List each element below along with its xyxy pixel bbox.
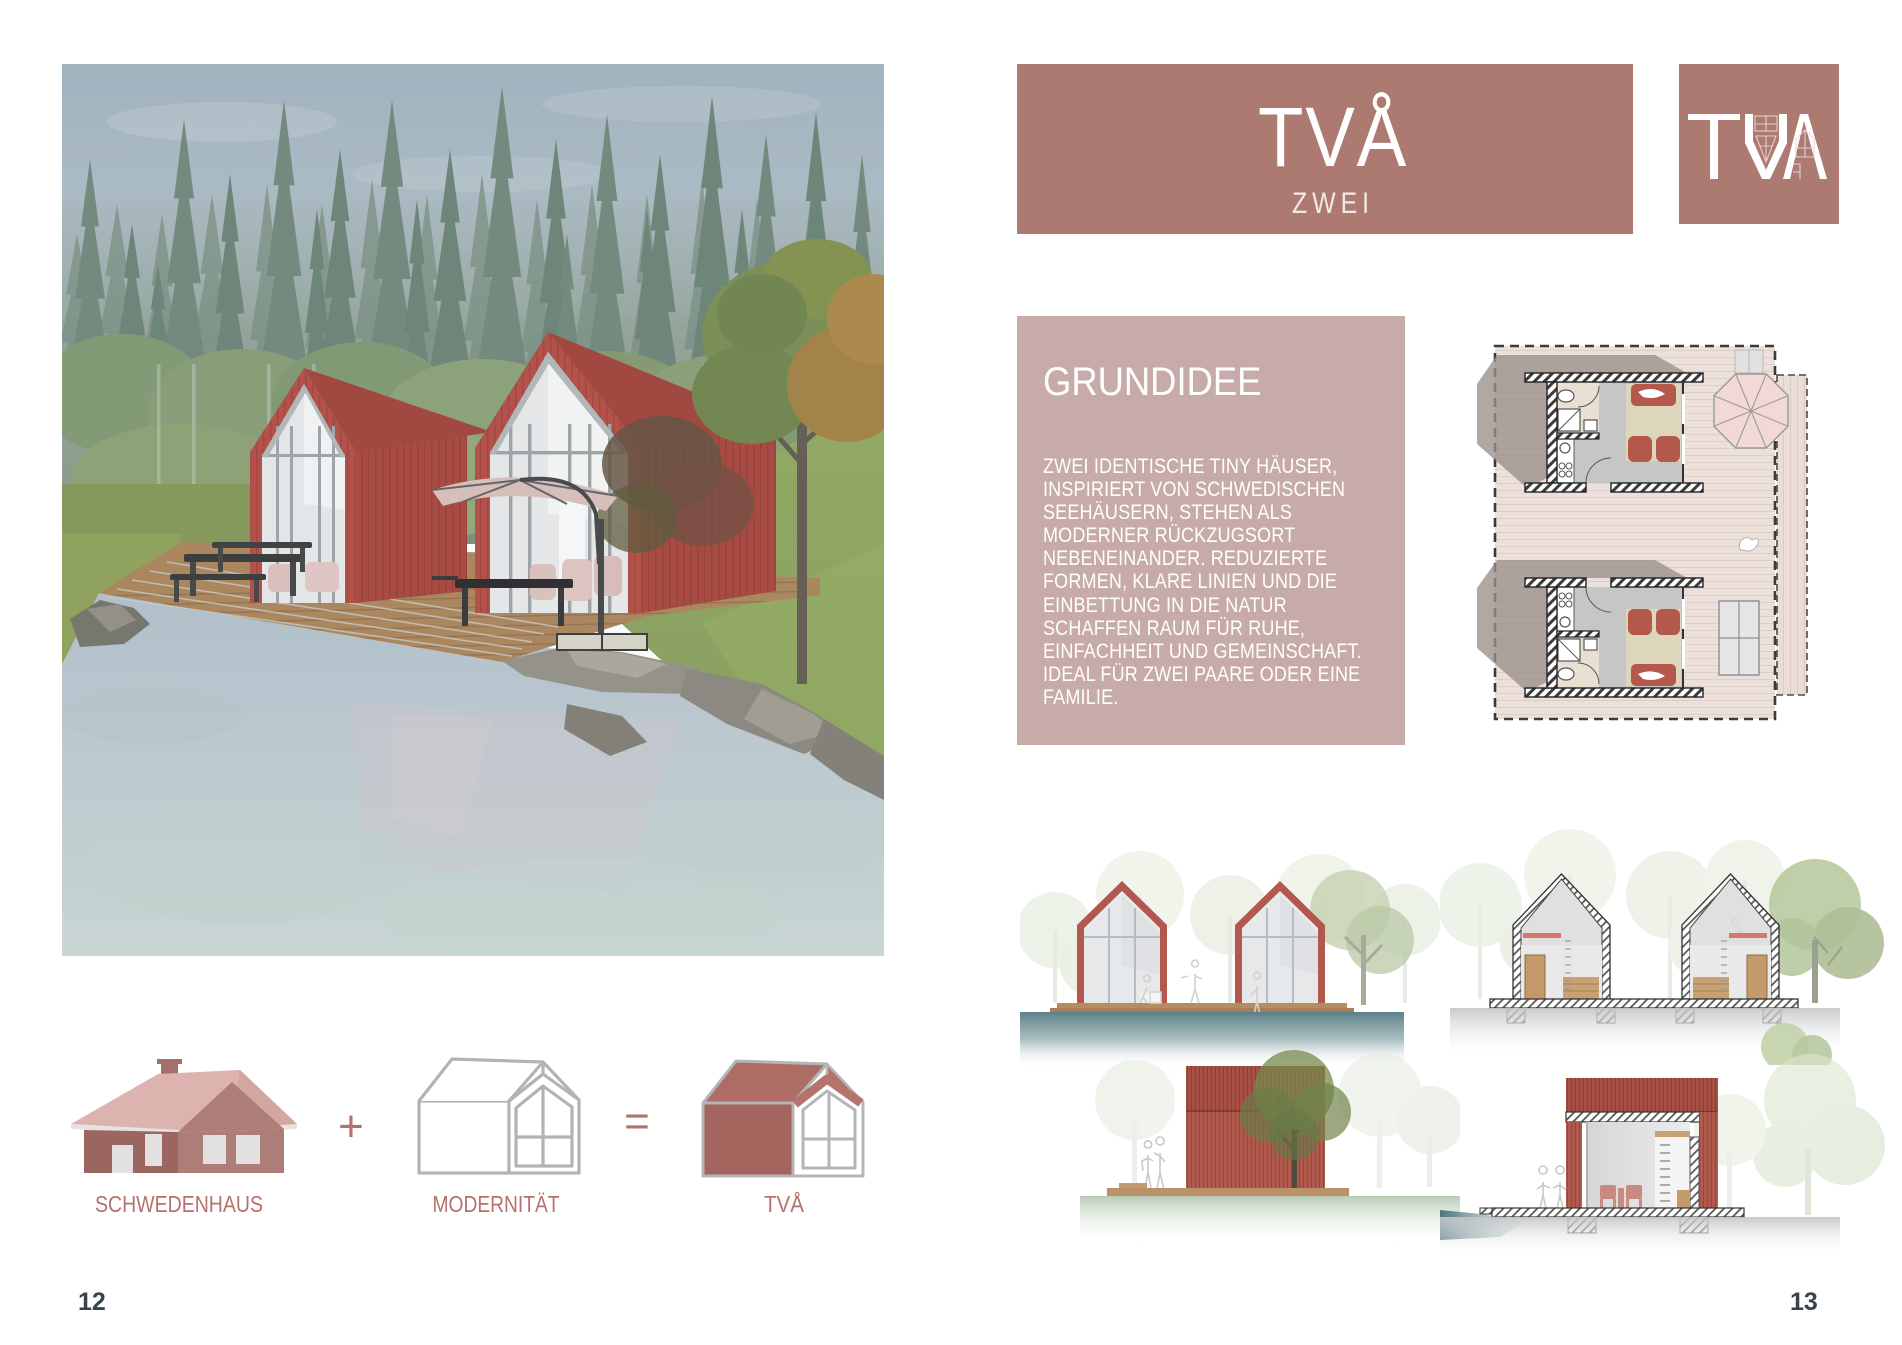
- svg-text:TVÅ: TVÅ: [1258, 90, 1408, 184]
- svg-text:SCHWEDENHAUS: SCHWEDENHAUS: [95, 1191, 263, 1217]
- svg-text:+: +: [338, 1102, 364, 1151]
- svg-text:TVÅ: TVÅ: [764, 1190, 805, 1217]
- svg-text:MODERNITÄT: MODERNITÄT: [433, 1191, 560, 1217]
- svg-text:=: =: [624, 1097, 650, 1146]
- svg-text:ZWEI: ZWEI: [1292, 187, 1374, 220]
